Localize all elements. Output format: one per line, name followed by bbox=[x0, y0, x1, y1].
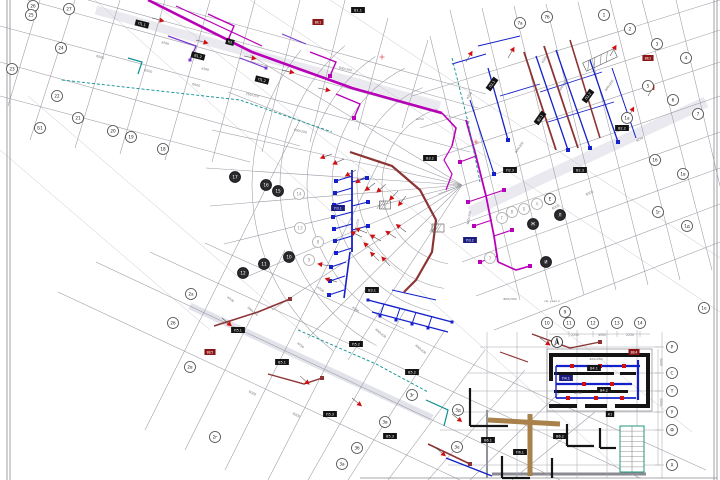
duct-terminal-icon bbox=[288, 297, 292, 301]
duct-run bbox=[268, 374, 322, 384]
grid-bubble-label: 12 bbox=[240, 271, 246, 276]
grid-line bbox=[30, 0, 75, 140]
grid-bubble-label: Ф bbox=[670, 428, 674, 433]
annotation-note: ø200 bbox=[161, 40, 169, 46]
duct-terminal-icon bbox=[492, 172, 496, 176]
duct-terminal-icon bbox=[365, 176, 369, 180]
dimension-text: 6000 bbox=[96, 54, 105, 60]
grid-bubble-label: 3д bbox=[455, 408, 461, 413]
grid-bubble-label: Б1 bbox=[37, 126, 43, 131]
grid-bubble-label: 2 bbox=[629, 27, 632, 32]
duct-terminal-icon bbox=[506, 138, 510, 142]
diffuser-icon bbox=[298, 374, 311, 387]
annotation-note: 400x200 bbox=[374, 327, 387, 339]
grid-line bbox=[88, 0, 478, 108]
grid-bubble-label: 3а bbox=[339, 462, 345, 467]
duct-run bbox=[540, 72, 602, 92]
duct-terminal-icon bbox=[333, 191, 337, 195]
equipment-tag-label: П3.2 bbox=[466, 238, 474, 242]
diffuser-icon bbox=[317, 85, 331, 93]
annotation-note: ø200 bbox=[226, 295, 234, 303]
duct-terminal-icon bbox=[502, 188, 506, 192]
equipment-tag: В1.1 bbox=[351, 7, 365, 13]
duct-run bbox=[428, 316, 432, 328]
equipment-tag: К1 bbox=[606, 411, 614, 417]
grid-bubble-label: З bbox=[489, 256, 492, 261]
grid-bubble-label: 19 bbox=[128, 135, 134, 140]
grid-bubble-label: 10 bbox=[544, 321, 550, 326]
diffuser-leader bbox=[369, 183, 375, 188]
duct-terminal-icon bbox=[478, 260, 482, 264]
equipment-tag: ВЕ1 bbox=[312, 19, 323, 25]
duct-terminal-icon bbox=[320, 376, 324, 380]
diffuser-arrow bbox=[510, 45, 517, 52]
equipment-tag-label: В3.2 bbox=[426, 156, 434, 160]
duct-run bbox=[428, 444, 470, 464]
equipment-tag: В5.3 bbox=[383, 433, 397, 439]
equipment-tag: П5.1 bbox=[231, 327, 245, 333]
grid-line bbox=[0, 62, 300, 146]
duct-run bbox=[498, 262, 530, 270]
equipment-tag-label: В5.2 bbox=[408, 370, 416, 374]
grid-line bbox=[165, 0, 210, 160]
diffuser-leader bbox=[400, 227, 406, 232]
grid-bubble-label: 2б bbox=[170, 321, 176, 326]
equipment-tag: В2.3 bbox=[573, 167, 587, 173]
dimension-text: 6000 bbox=[144, 68, 153, 74]
grid-line bbox=[268, 290, 365, 480]
hatch-line bbox=[384, 201, 389, 209]
equipment-tag: В2.2 bbox=[615, 125, 629, 131]
grid-bubble-label: 1б bbox=[652, 158, 658, 163]
duct-run bbox=[474, 220, 492, 226]
equipment-tag: ВЕ4 bbox=[628, 349, 639, 355]
duct-terminal-icon bbox=[331, 215, 335, 219]
annotation-note: 600x300 bbox=[466, 211, 472, 225]
grid-bubble-label: 3е bbox=[454, 445, 460, 450]
equipment-tag-label: П6.1 bbox=[516, 450, 524, 454]
grid-bubble-label: Б bbox=[523, 207, 526, 212]
duct-terminal-icon bbox=[458, 160, 462, 164]
annotation-note: ø160 bbox=[351, 305, 359, 313]
diffuser-leader bbox=[300, 376, 306, 381]
grid-bubble-label: 5 bbox=[647, 84, 650, 89]
equipment-tag-label: П1.2 bbox=[258, 77, 267, 83]
duct-run bbox=[470, 100, 494, 174]
duct-terminal-icon bbox=[468, 462, 472, 466]
equipment-tag-label: В6.2 bbox=[556, 434, 564, 438]
duct-terminal-icon bbox=[265, 67, 268, 70]
equipment-tag-label: В4.2 bbox=[600, 388, 608, 392]
grid-bubble-label: Г bbox=[501, 216, 504, 221]
equipment-tag-label: В5.3 bbox=[386, 434, 394, 438]
diffuser-arrow bbox=[159, 18, 165, 24]
duct-run bbox=[548, 102, 614, 122]
duct-run bbox=[446, 458, 492, 476]
equipment-tag: П2.2 bbox=[582, 89, 595, 104]
diffuser-leader bbox=[373, 255, 379, 261]
dimension-text: 2250 bbox=[626, 333, 634, 337]
dimension-text: 6000 bbox=[192, 82, 201, 88]
equipment-tag-label: ВЕ5 bbox=[207, 350, 214, 354]
duct-terminal-icon bbox=[366, 200, 370, 204]
duct-run bbox=[412, 312, 416, 324]
duct-terminal-icon bbox=[588, 146, 592, 150]
grid-bubble-label: 1е bbox=[701, 306, 707, 311]
duct-run bbox=[368, 300, 452, 322]
grid-bubble-label: В bbox=[511, 210, 514, 215]
grid-bubble-label: 3г bbox=[410, 393, 415, 398]
equipment-tag: В2.1 bbox=[534, 111, 547, 126]
grid-bubble-label: 9 bbox=[308, 258, 311, 263]
grid-bubble-label: 4 bbox=[685, 56, 688, 61]
grid-bubble-label: 10 bbox=[286, 255, 292, 260]
duct-run bbox=[396, 308, 400, 320]
duct-run bbox=[500, 84, 540, 96]
diffuser-arrow bbox=[396, 201, 403, 208]
wall-segment bbox=[615, 404, 650, 408]
equipment-tag-label: П4.1 bbox=[562, 376, 570, 380]
diffuser-leader bbox=[355, 234, 362, 237]
grid-line bbox=[145, 120, 300, 430]
equipment-tag: В6.2 bbox=[553, 433, 567, 439]
duct-run bbox=[329, 290, 344, 295]
diffuser-arrow bbox=[289, 69, 295, 75]
shaft-hatch-icon bbox=[430, 224, 444, 232]
diffuser-icon bbox=[362, 240, 375, 253]
diffuser-arrow bbox=[325, 87, 331, 93]
duct-run bbox=[460, 156, 476, 162]
duct-run bbox=[570, 40, 600, 138]
hatch-line bbox=[379, 201, 384, 209]
duct-run bbox=[330, 276, 345, 281]
grid-line bbox=[470, 392, 560, 480]
duct-run bbox=[500, 352, 528, 362]
equipment-tag: П2.3 bbox=[503, 167, 517, 173]
grid-bubble-label: 7б bbox=[544, 15, 550, 20]
grid-bubble-label: 3в bbox=[382, 420, 388, 425]
duct-run bbox=[372, 312, 448, 332]
equipment-tag: ВЕ5 bbox=[204, 349, 215, 355]
duct-terminal-icon bbox=[395, 319, 398, 322]
equipment-tag-label: В3.1 bbox=[368, 288, 376, 292]
duct-terminal-icon bbox=[329, 265, 333, 269]
wall-segment bbox=[554, 372, 614, 375]
annotation-note: ø160 bbox=[201, 66, 209, 72]
grid-bubble-label: 26 bbox=[30, 4, 36, 9]
duct-run bbox=[336, 94, 360, 118]
diffuser-leader bbox=[380, 184, 386, 189]
grid-bubble-label: 11 bbox=[566, 321, 572, 326]
grid-bubble-label: Е bbox=[549, 197, 552, 202]
damper-icon bbox=[594, 396, 598, 400]
diffuser-leader bbox=[322, 265, 330, 266]
grid-bubble-label: Х bbox=[671, 463, 674, 468]
duct-run bbox=[452, 54, 486, 64]
diffuser-icon bbox=[324, 276, 338, 285]
duct-terminal-icon bbox=[528, 264, 532, 268]
diffuser-leader bbox=[352, 398, 358, 403]
grid-bubble-label: 27 bbox=[66, 7, 72, 12]
annotation-note: 400x200 bbox=[293, 128, 307, 135]
grid-bubble-label: 17 bbox=[232, 175, 238, 180]
grid-arc bbox=[357, 88, 444, 289]
duct-run bbox=[335, 236, 352, 241]
grid-bubble-label: 1д bbox=[684, 224, 690, 229]
grid-line bbox=[348, 330, 445, 480]
equipment-tag: В3.1 bbox=[365, 287, 379, 293]
duct-terminal-icon bbox=[333, 239, 337, 243]
grid-bubble-label: 9 bbox=[564, 310, 567, 315]
equipment-tag-label: ВЕ1 bbox=[315, 20, 322, 24]
grid-line bbox=[676, 0, 720, 186]
equipment-tag: П3.1 bbox=[331, 205, 345, 211]
equipment-tag-label: В6.1 bbox=[484, 438, 492, 442]
annotation-note: 400x200 bbox=[414, 343, 427, 355]
duct-run bbox=[532, 334, 600, 348]
construction-line bbox=[330, 0, 720, 258]
grid-bubble-label: Л bbox=[558, 213, 561, 218]
duct-terminal-icon bbox=[379, 315, 382, 318]
diffuser-icon bbox=[368, 250, 381, 263]
grid-bubble-label: 11 bbox=[261, 262, 267, 267]
wall-segment bbox=[585, 404, 607, 408]
wall-segment bbox=[646, 357, 650, 404]
equipment-tag: В5.1 bbox=[275, 359, 289, 365]
duct-run bbox=[335, 188, 352, 193]
grid-bubble-label: 1 bbox=[603, 13, 606, 18]
wall-segment bbox=[549, 357, 553, 381]
grid-bubble-label: И bbox=[544, 260, 547, 265]
duct-terminal-icon bbox=[332, 227, 336, 231]
diffuser-leader bbox=[508, 51, 512, 58]
dimension-text: 3000 bbox=[659, 398, 663, 406]
grid-bubble-label: Ж bbox=[531, 222, 536, 227]
grid-bubble-label: 25 bbox=[28, 13, 34, 18]
grid-bubble-label: 3 bbox=[656, 42, 659, 47]
grid-bubble-label: 7 bbox=[697, 112, 700, 117]
damper-icon bbox=[570, 364, 574, 368]
diffuser-icon bbox=[317, 261, 331, 268]
grid-bubble-label: 6 bbox=[672, 98, 675, 103]
duct-terminal-icon bbox=[328, 74, 332, 78]
duct-run bbox=[62, 80, 332, 132]
equipment-tag-label: В2.3 bbox=[576, 168, 584, 172]
diffuser-leader bbox=[389, 234, 396, 238]
construction-line bbox=[0, 150, 210, 330]
grid-bubble-label: 22 bbox=[54, 94, 60, 99]
equipment-tag: В4.2 bbox=[597, 387, 611, 393]
grid-bubble-label: 24 bbox=[58, 46, 64, 51]
duct-terminal-icon bbox=[189, 59, 192, 62]
duct-terminal-icon bbox=[566, 148, 570, 152]
annotation-note: ø200 bbox=[316, 285, 324, 293]
duct-terminal-icon bbox=[411, 323, 414, 326]
duct-terminal-icon bbox=[451, 321, 454, 324]
grid-bubble-label: С bbox=[671, 371, 674, 376]
equipment-tag-label: П5.1 bbox=[234, 328, 242, 332]
equipment-tag-label: П2.3 bbox=[506, 168, 514, 172]
duct-terminal-icon bbox=[367, 299, 370, 302]
equipment-tag: П1.2 bbox=[255, 75, 270, 84]
diffuser-arrow bbox=[629, 105, 636, 112]
grid-bubble-label: 21 bbox=[75, 116, 81, 121]
grid-bubble-label: А bbox=[536, 202, 539, 207]
grid-bubble-label: 16 bbox=[263, 183, 269, 188]
damper-icon bbox=[582, 382, 586, 386]
annotation-note: ø250 bbox=[574, 391, 582, 395]
diffuser-icon bbox=[506, 45, 517, 59]
grid-line bbox=[185, 250, 285, 450]
equipment-tag: ВЕ2 bbox=[642, 55, 653, 61]
duct-run bbox=[334, 200, 352, 205]
damper-icon bbox=[610, 382, 614, 386]
diffuser-icon bbox=[464, 49, 475, 63]
wall-segment bbox=[620, 372, 636, 375]
diffuser-leader bbox=[360, 230, 367, 233]
annotation-note: 800x300 bbox=[503, 297, 516, 301]
annotation-note: 250x150 bbox=[245, 92, 259, 99]
duct-terminal-icon bbox=[466, 200, 470, 204]
grid-bubble-label: 2а bbox=[188, 292, 194, 297]
grid-bubble-label: 1в bbox=[680, 172, 686, 177]
damper-icon bbox=[622, 364, 626, 368]
equipment-tag-label: П5.2 bbox=[352, 342, 360, 346]
diffuser-arrow bbox=[384, 229, 391, 236]
duct-terminal-icon bbox=[616, 140, 620, 144]
equipment-tag-label: В4.1 bbox=[590, 366, 598, 370]
grid-bubble-label: 7а bbox=[517, 21, 523, 26]
grid-arc bbox=[252, 50, 333, 350]
duct-terminal-icon bbox=[334, 251, 338, 255]
grid-bubble-label: 14 bbox=[296, 192, 302, 197]
equipment-tag: В5.2 bbox=[405, 369, 419, 375]
annotation-note: ø250 bbox=[296, 341, 304, 349]
annotation-note: см. узел 1 bbox=[544, 299, 560, 303]
equipment-tag-label: П5.3 bbox=[326, 412, 334, 416]
equipment-tag-label: П3.1 bbox=[334, 206, 342, 210]
annotation-note: 400x200 bbox=[604, 79, 615, 92]
diffuser-arrow bbox=[368, 232, 375, 239]
duct-terminal-icon bbox=[510, 228, 514, 232]
duct-terminal-icon bbox=[334, 179, 338, 183]
equipment-tag: П5.3 bbox=[323, 411, 337, 417]
annotation-note: ø200 bbox=[465, 91, 473, 100]
diffuser-arrow bbox=[457, 417, 464, 424]
duct-terminal-icon bbox=[327, 293, 331, 297]
diffuser-leader bbox=[318, 88, 326, 90]
diffuser-arrow bbox=[356, 401, 363, 408]
damper-icon bbox=[566, 396, 570, 400]
equipment-tag: П3.2 bbox=[463, 237, 477, 243]
diffuser-arrow bbox=[394, 222, 401, 229]
grid-bubble-label: 1а bbox=[624, 116, 630, 121]
equipment-tag: П5.2 bbox=[349, 341, 363, 347]
diffuser-icon bbox=[384, 229, 398, 241]
diffuser-icon bbox=[363, 181, 376, 193]
equipment-tag: В6.1 bbox=[481, 437, 495, 443]
equipment-tag: В1.2 bbox=[191, 51, 206, 60]
diffuser-leader bbox=[337, 159, 344, 162]
duct-terminal-icon bbox=[472, 224, 476, 228]
diffuser-icon bbox=[331, 157, 345, 167]
equipment-tag-label: В2.2 bbox=[618, 126, 626, 130]
diffuser-arrow bbox=[319, 154, 325, 161]
duct-run bbox=[350, 152, 436, 292]
diffuser-leader bbox=[152, 18, 160, 20]
drawing-canvas: П1.1В1.2П1.2ВЕ1В1.1К2П2.1В2.1П2.2В2.2ВЕ2… bbox=[0, 0, 720, 480]
grid-bubble-label: 8 bbox=[317, 240, 320, 245]
duct-run bbox=[333, 212, 352, 217]
dimension-text: 3000 bbox=[659, 358, 663, 366]
dimension-text: 4500 bbox=[598, 333, 606, 337]
grid-bubble-label: 14 bbox=[637, 321, 643, 326]
damper-icon bbox=[620, 396, 624, 400]
equipment-tag-label: В5.1 bbox=[278, 360, 286, 364]
equipment-tag-label: К1 bbox=[608, 412, 613, 416]
duct-terminal-icon bbox=[427, 327, 430, 330]
duct-terminal-icon bbox=[352, 116, 356, 120]
dimension-text: 2250 bbox=[571, 333, 579, 337]
grid-bubble-label: Т bbox=[670, 389, 674, 394]
grid-line bbox=[494, 242, 720, 330]
diffuser-leader bbox=[282, 70, 290, 72]
duct-run bbox=[478, 36, 520, 46]
grid-bubble-label: 15 bbox=[275, 189, 281, 194]
duct-run bbox=[282, 34, 306, 44]
duct-terminal-icon bbox=[366, 224, 370, 228]
grid-line bbox=[210, 185, 462, 206]
floor-plan-svg: П1.1В1.2П1.2ВЕ1В1.1К2П2.1В2.1П2.2В2.2ВЕ2… bbox=[0, 0, 720, 480]
dimension-text: 6000 bbox=[248, 389, 257, 396]
diffuser-arrow bbox=[317, 261, 323, 267]
grid-bubble-label: 18 bbox=[160, 147, 166, 152]
diffuser-arrow bbox=[468, 49, 475, 56]
duct-run bbox=[488, 420, 560, 424]
duct-run bbox=[128, 58, 142, 74]
dimension-text: 6000 bbox=[292, 411, 301, 418]
annotation-note: ø250 bbox=[416, 117, 424, 121]
equipment-tag: П2.1 bbox=[486, 77, 499, 92]
diffuser-icon bbox=[368, 232, 382, 243]
grid-bubble-label: 23 bbox=[9, 67, 15, 72]
equipment-tag: В4.1 bbox=[587, 365, 601, 371]
grid-line bbox=[450, 132, 720, 228]
duct-run bbox=[334, 224, 352, 229]
grid-bubble-label: 13 bbox=[614, 321, 620, 326]
equipment-tag-label: ВЕ2 bbox=[645, 56, 652, 60]
grid-bubble-label: 13 bbox=[297, 226, 303, 231]
grid-bubble-label: 2в bbox=[187, 365, 193, 370]
grid-bubble-label: 1г bbox=[656, 210, 661, 215]
grid-bubble-label: 3б bbox=[354, 446, 360, 451]
equipment-tag: П6.1 bbox=[513, 449, 527, 455]
grid-bubble-label: У bbox=[671, 410, 674, 415]
equipment-tag-label: В1.1 bbox=[354, 8, 362, 12]
grid-line bbox=[438, 96, 720, 194]
wall-segment bbox=[549, 404, 577, 408]
duct-run bbox=[352, 202, 368, 206]
duct-run bbox=[494, 230, 512, 236]
grid-line bbox=[358, 18, 388, 130]
equipment-tag-label: ВЕ4 bbox=[631, 350, 638, 354]
grid-bubble-label: 20 bbox=[110, 129, 116, 134]
equipment-tag: П4.1 bbox=[559, 375, 573, 381]
duct-terminal-icon bbox=[598, 340, 602, 344]
grid-bubble-label: 12 bbox=[590, 321, 596, 326]
annotation-note: 400x200 bbox=[589, 357, 602, 361]
grid-bubble-label: 2г bbox=[213, 435, 218, 440]
